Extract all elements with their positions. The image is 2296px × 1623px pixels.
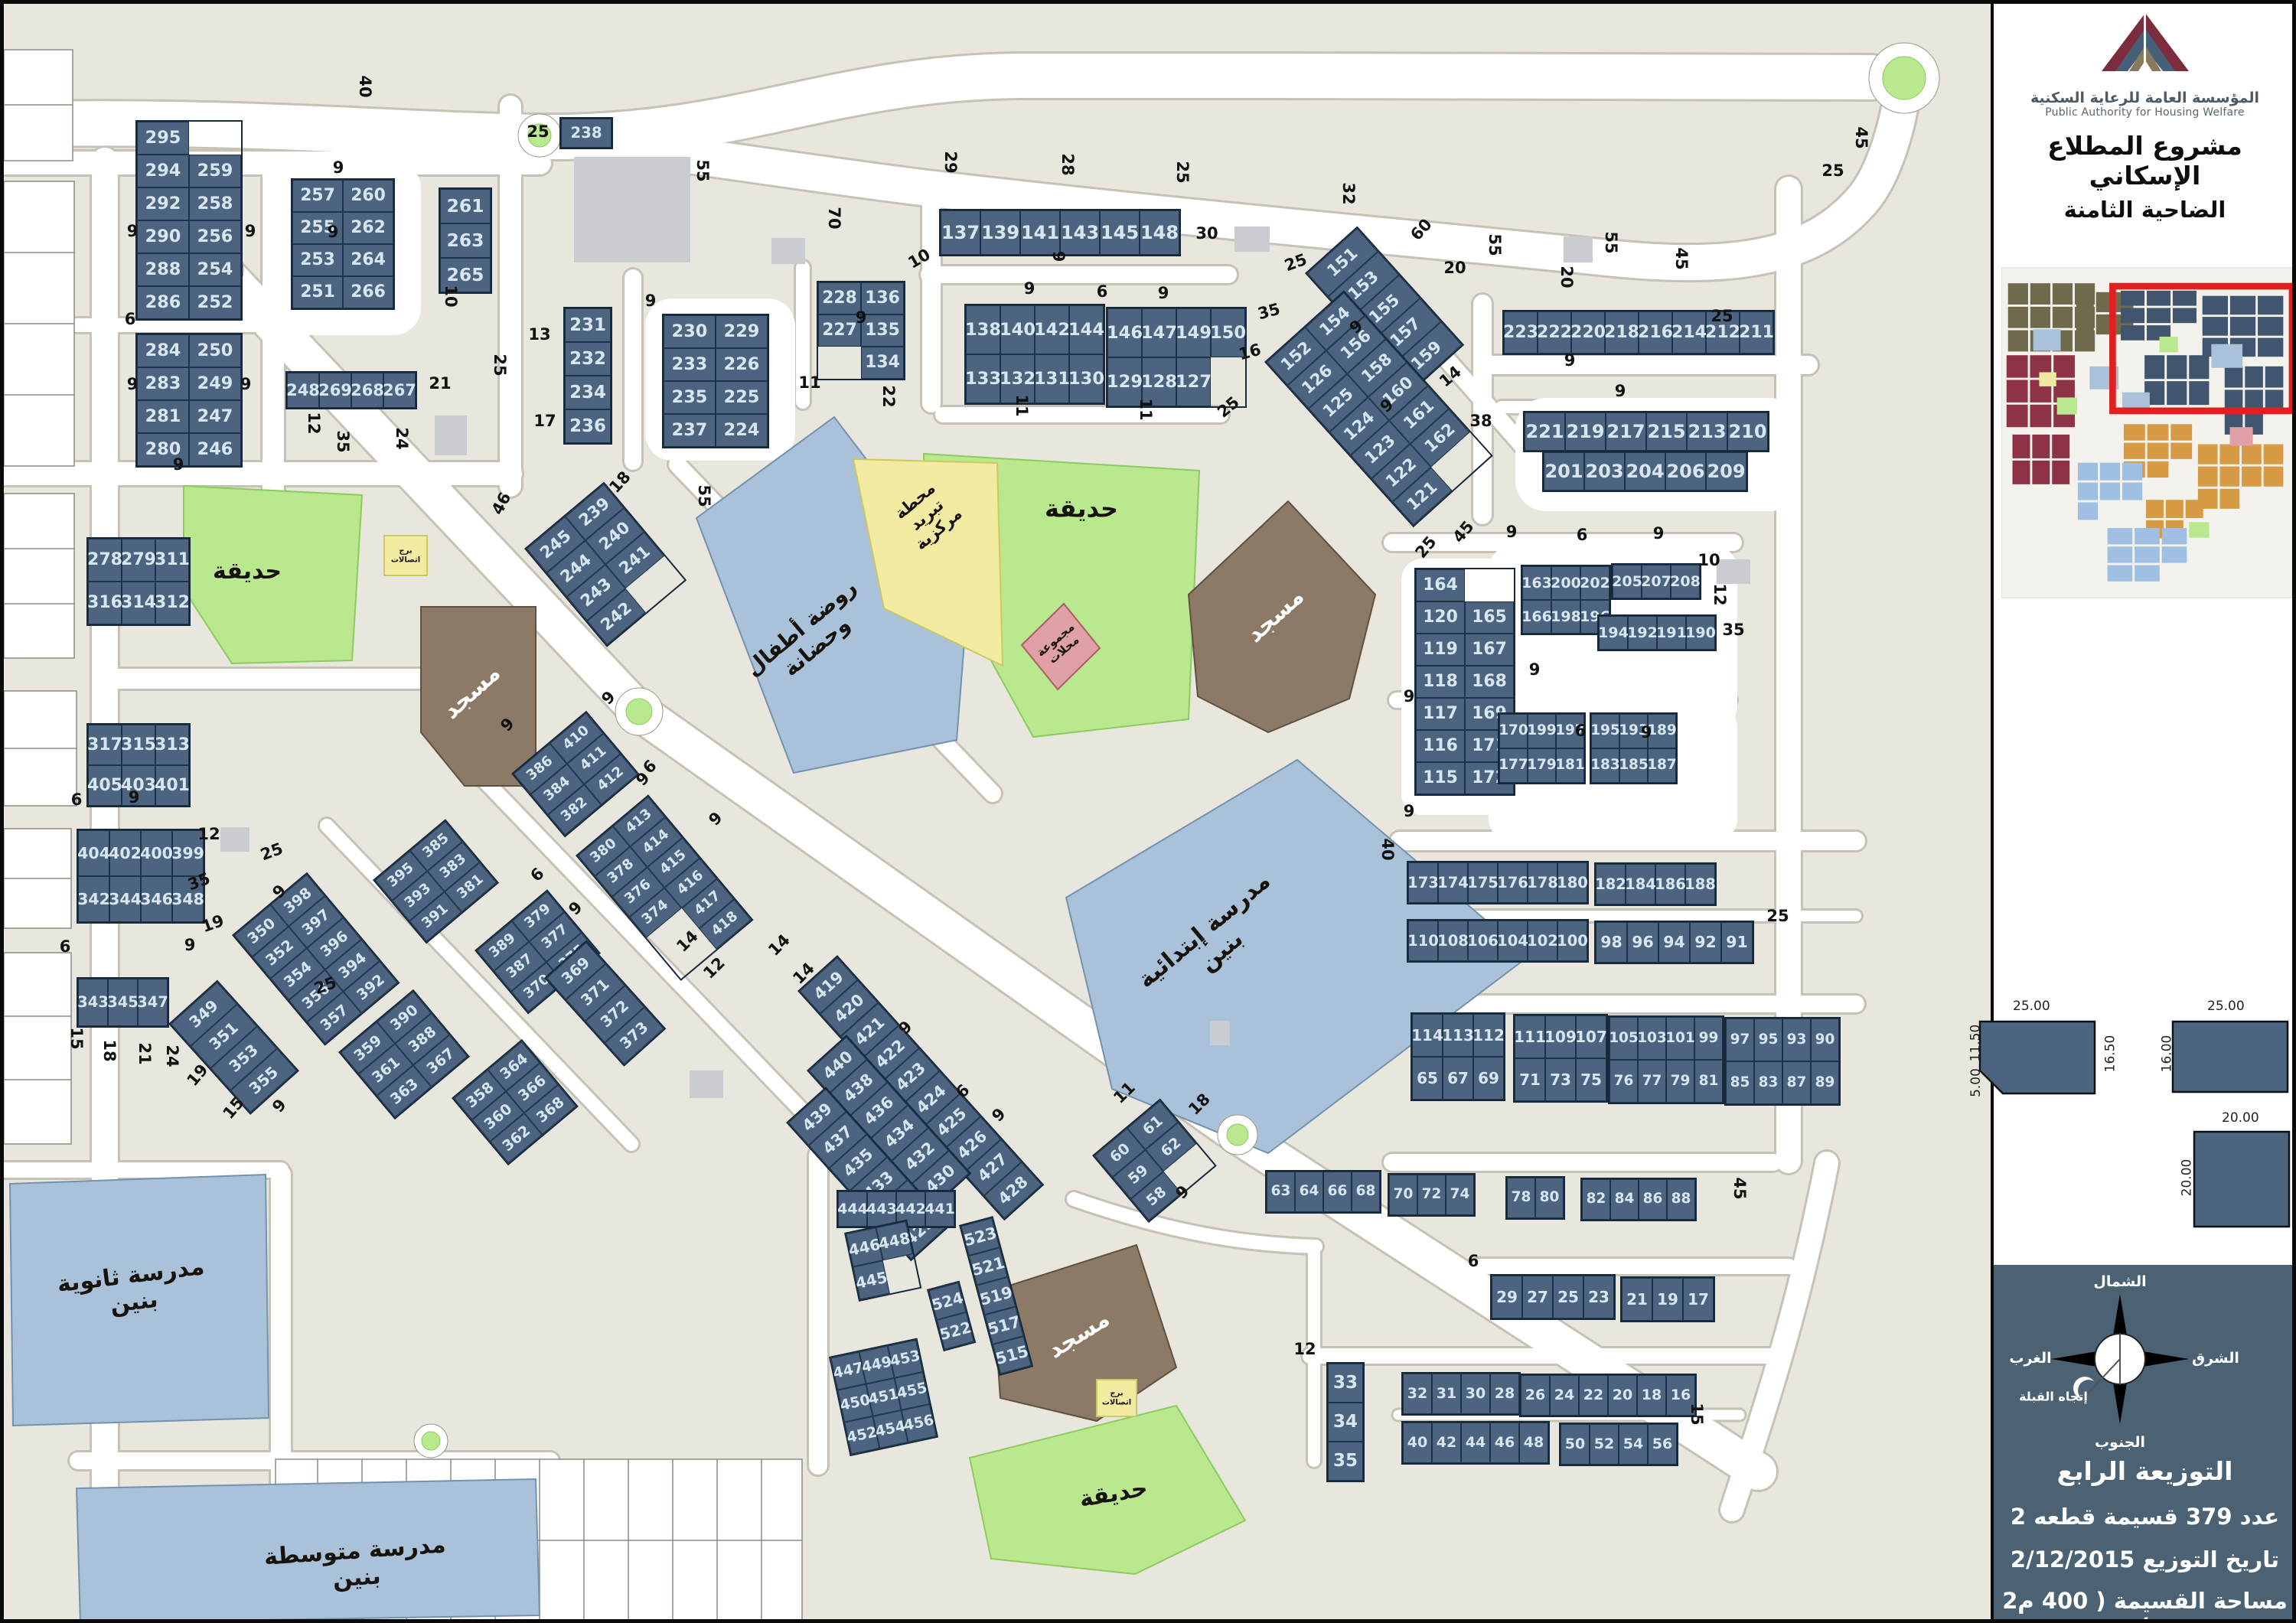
plot-block: 343345347 [77, 977, 169, 1028]
plot-78[interactable]: 78 [1507, 1178, 1535, 1218]
plot-83[interactable]: 83 [1754, 1061, 1782, 1104]
key-map-cluster [2124, 443, 2145, 459]
plot-54[interactable]: 54 [1619, 1424, 1648, 1465]
plot-block: 50525456 [1559, 1423, 1678, 1466]
street-dimension-label: 40 [1378, 838, 1397, 860]
plot-217[interactable]: 217 [1606, 412, 1646, 451]
plot-32[interactable]: 32 [1403, 1374, 1432, 1414]
street-dimension-label: 11 [1013, 394, 1031, 416]
plot-85[interactable]: 85 [1726, 1061, 1754, 1104]
plot-185[interactable]: 185 [1619, 748, 1648, 783]
plot-22[interactable]: 22 [1579, 1375, 1608, 1416]
street-dimension-label: 38 [1469, 412, 1492, 430]
plot-167[interactable]: 167 [1465, 634, 1514, 666]
plot-113[interactable]: 113 [1443, 1014, 1473, 1057]
plot-213[interactable]: 213 [1687, 412, 1727, 451]
plot-226[interactable]: 226 [716, 348, 768, 381]
plot-221[interactable]: 221 [1525, 412, 1565, 451]
plot-278[interactable]: 278 [88, 539, 122, 582]
plot-block: 223222220218216214212211 [1502, 310, 1775, 355]
plot-35[interactable]: 35 [1328, 1442, 1363, 1481]
plot-198[interactable]: 198 [1551, 600, 1580, 634]
plot-231[interactable]: 231 [565, 308, 611, 342]
plot-191[interactable]: 191 [1657, 616, 1686, 650]
street-dimension-label: 9 [1564, 351, 1576, 370]
plot-187[interactable]: 187 [1648, 748, 1676, 783]
plot-186[interactable]: 186 [1655, 864, 1685, 904]
street-dimension-label: 70 [825, 207, 843, 229]
plot-96[interactable]: 96 [1627, 922, 1658, 963]
plot-89[interactable]: 89 [1811, 1061, 1839, 1104]
plot-block: 9896949291 [1594, 921, 1754, 964]
plot-269[interactable]: 269 [319, 373, 351, 408]
plot-93[interactable]: 93 [1782, 1018, 1811, 1061]
plot-312[interactable]: 312 [155, 582, 189, 624]
plot-102[interactable]: 102 [1528, 921, 1557, 961]
plot-64[interactable]: 64 [1295, 1172, 1323, 1212]
plot-522[interactable]: 522 [937, 1312, 974, 1350]
plot-109[interactable]: 109 [1545, 1015, 1576, 1058]
plot-343[interactable]: 343 [78, 979, 108, 1026]
plot-444[interactable]: 444 [838, 1191, 867, 1227]
plot-136[interactable]: 136 [861, 282, 904, 314]
plot-268[interactable]: 268 [351, 373, 383, 408]
plot-173[interactable]: 173 [1408, 862, 1438, 903]
plot-441[interactable]: 441 [925, 1191, 954, 1227]
plot-140[interactable]: 140 [1000, 305, 1035, 354]
plot-30[interactable]: 30 [1461, 1374, 1490, 1414]
street-dimension-label: 12 [197, 825, 220, 843]
plot-400[interactable]: 400 [141, 830, 172, 876]
plot-267[interactable]: 267 [383, 373, 416, 408]
plot-92[interactable]: 92 [1690, 922, 1721, 963]
street-dimension-label: 15 [67, 1027, 86, 1049]
plot-251[interactable]: 251 [292, 276, 343, 308]
key-map-cluster [2122, 483, 2142, 500]
key-map-cluster [2121, 308, 2144, 323]
site-plan-sheet: 2952942592922582902562882542862522842502… [0, 0, 2296, 1623]
plot-215[interactable]: 215 [1646, 412, 1687, 451]
plot-176[interactable]: 176 [1498, 862, 1528, 903]
plot-135[interactable]: 135 [861, 314, 904, 347]
plot-81[interactable]: 81 [1694, 1060, 1723, 1103]
plot-block: 146147149150129128127 [1106, 307, 1247, 408]
plot-26[interactable]: 26 [1521, 1375, 1550, 1416]
plot-142[interactable]: 142 [1035, 305, 1069, 354]
key-map-cluster [2033, 329, 2061, 350]
plot-207[interactable]: 207 [1642, 565, 1671, 598]
key-map-cluster [2030, 307, 2050, 328]
street-dimension-label: 6 [1577, 526, 1588, 544]
plot-114[interactable]: 114 [1412, 1014, 1443, 1057]
plot-48[interactable]: 48 [1519, 1423, 1548, 1463]
plot-202[interactable]: 202 [1580, 566, 1609, 600]
plot-21[interactable]: 21 [1622, 1278, 1652, 1321]
plot-84[interactable]: 84 [1610, 1179, 1639, 1220]
plot-34[interactable]: 34 [1328, 1403, 1363, 1442]
plot-199[interactable]: 199 [1528, 714, 1556, 748]
plot-116[interactable]: 116 [1416, 730, 1465, 762]
plot-69[interactable]: 69 [1473, 1057, 1504, 1100]
street-dimension-label: 40 [356, 75, 374, 97]
plot-56[interactable]: 56 [1648, 1424, 1677, 1465]
plot-194[interactable]: 194 [1599, 616, 1628, 650]
plot-block: 32313028 [1401, 1372, 1521, 1416]
plot-206[interactable]: 206 [1665, 452, 1706, 490]
plot-164[interactable]: 164 [1416, 569, 1465, 601]
plot-27[interactable]: 27 [1522, 1276, 1553, 1318]
plot-292[interactable]: 292 [137, 187, 189, 220]
plot-79[interactable]: 79 [1666, 1060, 1694, 1103]
plot-97[interactable]: 97 [1726, 1018, 1754, 1061]
plot-120[interactable]: 120 [1416, 601, 1465, 634]
plot-70[interactable]: 70 [1389, 1175, 1417, 1215]
key-map-cluster [2032, 435, 2050, 458]
plot-284[interactable]: 284 [137, 334, 189, 367]
plot-139[interactable]: 139 [980, 210, 1020, 255]
plot-315[interactable]: 315 [122, 725, 155, 765]
plot-137[interactable]: 137 [941, 210, 980, 255]
plot-143[interactable]: 143 [1060, 210, 1100, 255]
plot-405[interactable]: 405 [88, 765, 122, 806]
plot-218[interactable]: 218 [1605, 311, 1639, 354]
plot-314[interactable]: 314 [122, 582, 155, 624]
plot-115[interactable]: 115 [1416, 762, 1465, 794]
street-dimension-label: 6 [125, 310, 136, 328]
plot-279[interactable]: 279 [122, 539, 155, 582]
plot-block: 114113112656769 [1411, 1012, 1505, 1101]
plot-144[interactable]: 144 [1069, 305, 1104, 354]
plot-247[interactable]: 247 [189, 400, 241, 433]
plot-286[interactable]: 286 [137, 286, 189, 319]
plot-264[interactable]: 264 [343, 244, 393, 276]
plot-73[interactable]: 73 [1545, 1058, 1576, 1101]
plot-250[interactable]: 250 [189, 334, 241, 367]
plot-404[interactable]: 404 [78, 830, 109, 876]
plot-24[interactable]: 24 [1550, 1375, 1579, 1416]
plot-174[interactable]: 174 [1438, 862, 1468, 903]
street-dimension-label: 9 [1404, 802, 1415, 820]
plot-183[interactable]: 183 [1591, 748, 1619, 783]
plot-347[interactable]: 347 [138, 979, 168, 1026]
district-title: الضاحية الثامنة [1994, 197, 2296, 223]
plot-248[interactable]: 248 [287, 373, 319, 408]
plot-138[interactable]: 138 [966, 305, 1000, 354]
plot-317[interactable]: 317 [88, 725, 122, 765]
plot-118[interactable]: 118 [1416, 666, 1465, 698]
plot-448[interactable]: 448 [876, 1221, 912, 1260]
org-name-arabic: المؤسسة العامة للرعاية السكنية [1994, 90, 2296, 106]
plot-68[interactable]: 68 [1352, 1172, 1380, 1212]
compass-south-label: الجنوب [2095, 1434, 2145, 1451]
plot-195[interactable]: 195 [1591, 714, 1619, 748]
plot-190[interactable]: 190 [1686, 616, 1715, 650]
plot-229[interactable]: 229 [716, 315, 768, 348]
plot-266[interactable]: 266 [343, 276, 393, 308]
plot-74[interactable]: 74 [1446, 1175, 1474, 1215]
plot-253[interactable]: 253 [292, 244, 343, 276]
plot-237[interactable]: 237 [664, 414, 716, 447]
plot-23[interactable]: 23 [1583, 1276, 1614, 1318]
plot-46[interactable]: 46 [1490, 1423, 1519, 1463]
plot-257[interactable]: 257 [292, 180, 343, 212]
distribution-title: التوزيعة الرابع [1994, 1456, 2296, 1486]
plot-block: 182184186188 [1594, 862, 1717, 906]
plot-134[interactable]: 134 [861, 347, 904, 379]
plot-188[interactable]: 188 [1685, 864, 1715, 904]
plot-101[interactable]: 101 [1666, 1017, 1694, 1060]
plot-166[interactable]: 166 [1522, 600, 1551, 634]
plot-208[interactable]: 208 [1671, 565, 1700, 598]
plot-110[interactable]: 110 [1408, 921, 1438, 961]
plot-203[interactable]: 203 [1584, 452, 1625, 490]
plot-67[interactable]: 67 [1443, 1057, 1473, 1100]
plot-234[interactable]: 234 [565, 376, 611, 409]
plot-95[interactable]: 95 [1754, 1018, 1782, 1061]
key-map-cluster [2108, 546, 2133, 562]
plot-346[interactable]: 346 [141, 876, 172, 922]
plot-block: 4042444648 [1401, 1421, 1550, 1465]
plot-31[interactable]: 31 [1432, 1374, 1461, 1414]
street-dimension-label: 9 [1653, 524, 1665, 543]
plot-401[interactable]: 401 [155, 765, 189, 806]
plot-233[interactable]: 233 [664, 348, 716, 381]
plot-block: 257260255262253264251266 [291, 178, 395, 310]
plot-72[interactable]: 72 [1417, 1175, 1446, 1215]
plot-33[interactable]: 33 [1328, 1364, 1363, 1403]
street-dimension-label: 55 [1602, 231, 1620, 253]
street-dimension-label: 9 [856, 308, 867, 327]
plot-block: 231232234236 [563, 307, 612, 445]
plot-168[interactable]: 168 [1465, 666, 1514, 698]
plot-181[interactable]: 181 [1556, 748, 1584, 783]
street-dimension-label: 20 [1557, 266, 1576, 288]
telecom-label: برج اتصالات [1102, 1390, 1131, 1407]
plot-63[interactable]: 63 [1267, 1172, 1295, 1212]
plot-227[interactable]: 227 [818, 314, 861, 347]
plot-42[interactable]: 42 [1432, 1423, 1461, 1463]
street-dimension-label: 11 [798, 373, 820, 392]
plot-256[interactable]: 256 [189, 220, 241, 253]
plot-19[interactable]: 19 [1652, 1278, 1683, 1321]
plot-402[interactable]: 402 [109, 830, 141, 876]
plot-345[interactable]: 345 [108, 979, 138, 1026]
plot-281[interactable]: 281 [137, 400, 189, 433]
plot-147[interactable]: 147 [1142, 308, 1176, 357]
plot-263[interactable]: 263 [440, 223, 491, 258]
plot-225[interactable]: 225 [716, 381, 768, 414]
plot-249[interactable]: 249 [189, 367, 241, 400]
key-map[interactable] [2001, 262, 2292, 603]
plot-17[interactable]: 17 [1683, 1278, 1714, 1321]
plot-201[interactable]: 201 [1544, 452, 1584, 490]
plot-149[interactable]: 149 [1176, 308, 1211, 357]
plot-104[interactable]: 104 [1498, 921, 1528, 961]
key-map-cluster [2076, 314, 2094, 334]
plot-261[interactable]: 261 [440, 189, 491, 223]
plot-254[interactable]: 254 [189, 253, 241, 286]
key-map-cluster [2166, 500, 2183, 518]
plot-127[interactable]: 127 [1176, 357, 1211, 406]
plot-456[interactable]: 456 [902, 1404, 937, 1442]
plot-141[interactable]: 141 [1020, 210, 1060, 255]
plot-445[interactable]: 445 [853, 1260, 890, 1299]
plot-443[interactable]: 443 [867, 1191, 896, 1227]
plot-117[interactable]: 117 [1416, 698, 1465, 730]
plot-28[interactable]: 28 [1490, 1374, 1519, 1414]
plot-52[interactable]: 52 [1590, 1424, 1619, 1465]
plot-100[interactable]: 100 [1557, 921, 1587, 961]
plot-252[interactable]: 252 [189, 286, 241, 319]
plot-184[interactable]: 184 [1626, 864, 1655, 904]
plot-288[interactable]: 288 [137, 253, 189, 286]
plot-106[interactable]: 106 [1468, 921, 1498, 961]
plot-20[interactable]: 20 [1608, 1375, 1637, 1416]
plot-87[interactable]: 87 [1782, 1061, 1811, 1104]
plot-94[interactable]: 94 [1658, 922, 1690, 963]
plot-178[interactable]: 178 [1528, 862, 1557, 903]
plot-29[interactable]: 29 [1492, 1276, 1522, 1318]
key-map-cluster [2189, 522, 2209, 537]
plot-112[interactable]: 112 [1473, 1014, 1504, 1057]
plot-165[interactable]: 165 [1465, 601, 1514, 634]
street-dimension-label: 9 [333, 158, 344, 177]
plot-133[interactable]: 133 [966, 354, 1000, 403]
street-dimension-label: 9 [1049, 251, 1068, 262]
key-map-cluster [2258, 296, 2283, 315]
key-map-cluster [2162, 528, 2187, 544]
plot-145[interactable]: 145 [1100, 210, 1140, 255]
plot-258[interactable]: 258 [189, 187, 241, 220]
plot-block: 295294259292258290256288254286252 [135, 120, 243, 321]
plot-146[interactable]: 146 [1107, 308, 1142, 357]
plot-262[interactable]: 262 [343, 212, 393, 244]
plot-177[interactable]: 177 [1499, 748, 1528, 783]
plot-82[interactable]: 82 [1582, 1179, 1610, 1220]
plot-block: 333435 [1326, 1362, 1365, 1482]
plot-283[interactable]: 283 [137, 367, 189, 400]
plot-316[interactable]: 316 [88, 582, 122, 624]
key-map-cluster [2052, 461, 2069, 484]
plot-189[interactable]: 189 [1648, 714, 1676, 748]
plot-182[interactable]: 182 [1596, 864, 1626, 904]
plot-179[interactable]: 179 [1528, 748, 1556, 783]
plot-223[interactable]: 223 [1504, 311, 1538, 354]
plot-131[interactable]: 131 [1035, 354, 1069, 403]
plot-77[interactable]: 77 [1638, 1060, 1666, 1103]
plot-211[interactable]: 211 [1740, 311, 1773, 354]
plot-222[interactable]: 222 [1538, 311, 1571, 354]
plot-86[interactable]: 86 [1639, 1179, 1667, 1220]
plot-block: 205207208 [1611, 563, 1701, 600]
plot-205[interactable]: 205 [1613, 565, 1642, 598]
plot-246[interactable]: 246 [189, 433, 241, 466]
plot-103[interactable]: 103 [1638, 1017, 1666, 1060]
plot-18[interactable]: 18 [1637, 1375, 1666, 1416]
plot-204[interactable]: 204 [1625, 452, 1665, 490]
plot-block: 278279311316314312 [86, 537, 191, 626]
info-panel: الشمال الجنوب الشرق الغرب إتجاه القبلة ا… [1994, 1265, 2296, 1623]
plot-311[interactable]: 311 [155, 539, 189, 582]
plot-111[interactable]: 111 [1515, 1015, 1545, 1058]
plot-163[interactable]: 163 [1522, 566, 1551, 600]
plot-259[interactable]: 259 [189, 155, 241, 187]
plot-260[interactable]: 260 [343, 180, 393, 212]
plot-180[interactable]: 180 [1557, 862, 1587, 903]
plot-108[interactable]: 108 [1438, 921, 1468, 961]
plot-192[interactable]: 192 [1628, 616, 1657, 650]
plot-50[interactable]: 50 [1561, 1424, 1590, 1465]
plot-220[interactable]: 220 [1571, 311, 1605, 354]
plot-313[interactable]: 313 [155, 725, 189, 765]
plot-76[interactable]: 76 [1609, 1060, 1638, 1103]
plot-224[interactable]: 224 [716, 414, 768, 447]
plot-295[interactable]: 295 [137, 122, 189, 155]
plot-236[interactable]: 236 [565, 409, 611, 443]
street-dimension-label: 9 [184, 936, 196, 954]
plot-44[interactable]: 44 [1461, 1423, 1490, 1463]
plot-200[interactable]: 200 [1551, 566, 1580, 600]
plot-90[interactable]: 90 [1811, 1018, 1839, 1061]
plot-238[interactable]: 238 [561, 119, 612, 148]
plot-228[interactable]: 228 [818, 282, 861, 314]
plot-342[interactable]: 342 [78, 876, 109, 922]
plot-99[interactable]: 99 [1694, 1017, 1723, 1060]
plot-214[interactable]: 214 [1672, 311, 1706, 354]
plot-25[interactable]: 25 [1553, 1276, 1583, 1318]
plot-80[interactable]: 80 [1535, 1178, 1564, 1218]
plot-40[interactable]: 40 [1403, 1423, 1432, 1463]
street-dimension-label: 21 [429, 374, 451, 393]
plot-148[interactable]: 148 [1140, 210, 1179, 255]
plot-219[interactable]: 219 [1565, 412, 1606, 451]
key-map-cluster [2135, 528, 2160, 544]
plot-75[interactable]: 75 [1576, 1058, 1606, 1101]
plot-119[interactable]: 119 [1416, 634, 1465, 666]
key-map-cluster [2078, 483, 2098, 500]
plot-98[interactable]: 98 [1596, 922, 1627, 963]
plot-91[interactable]: 91 [1721, 922, 1753, 963]
plot-88[interactable]: 88 [1667, 1179, 1695, 1220]
plot-65[interactable]: 65 [1412, 1057, 1443, 1100]
plot-210[interactable]: 210 [1727, 412, 1768, 451]
plot-66[interactable]: 66 [1323, 1172, 1352, 1212]
plot-105[interactable]: 105 [1609, 1017, 1638, 1060]
plot-block: 248269268267 [285, 371, 417, 409]
street-dimension-label: 15 [1688, 1403, 1706, 1425]
plot-71[interactable]: 71 [1515, 1058, 1545, 1101]
plot-216[interactable]: 216 [1639, 311, 1672, 354]
plot-294[interactable]: 294 [137, 155, 189, 187]
plot-232[interactable]: 232 [565, 342, 611, 376]
distribution-date-line: تاريخ التوزيع 2/12/2015 [1994, 1546, 2296, 1572]
plot-175[interactable]: 175 [1468, 862, 1498, 903]
key-map-cluster [2198, 467, 2218, 487]
plot-130[interactable]: 130 [1069, 354, 1104, 403]
plot-209[interactable]: 209 [1706, 452, 1746, 490]
plot-230[interactable]: 230 [664, 315, 716, 348]
street-dimension-label: 24 [393, 427, 411, 449]
plot-290[interactable]: 290 [137, 220, 189, 253]
plot-107[interactable]: 107 [1576, 1015, 1606, 1058]
plot-block: 228136227135134 [817, 281, 905, 380]
plot-block: 238 [559, 117, 613, 149]
plot-344[interactable]: 344 [109, 876, 141, 922]
key-map-cluster [2007, 380, 2028, 402]
plot-170[interactable]: 170 [1499, 714, 1528, 748]
plot-235[interactable]: 235 [664, 381, 716, 414]
plot-block: 284250283249281247280246 [135, 333, 243, 468]
